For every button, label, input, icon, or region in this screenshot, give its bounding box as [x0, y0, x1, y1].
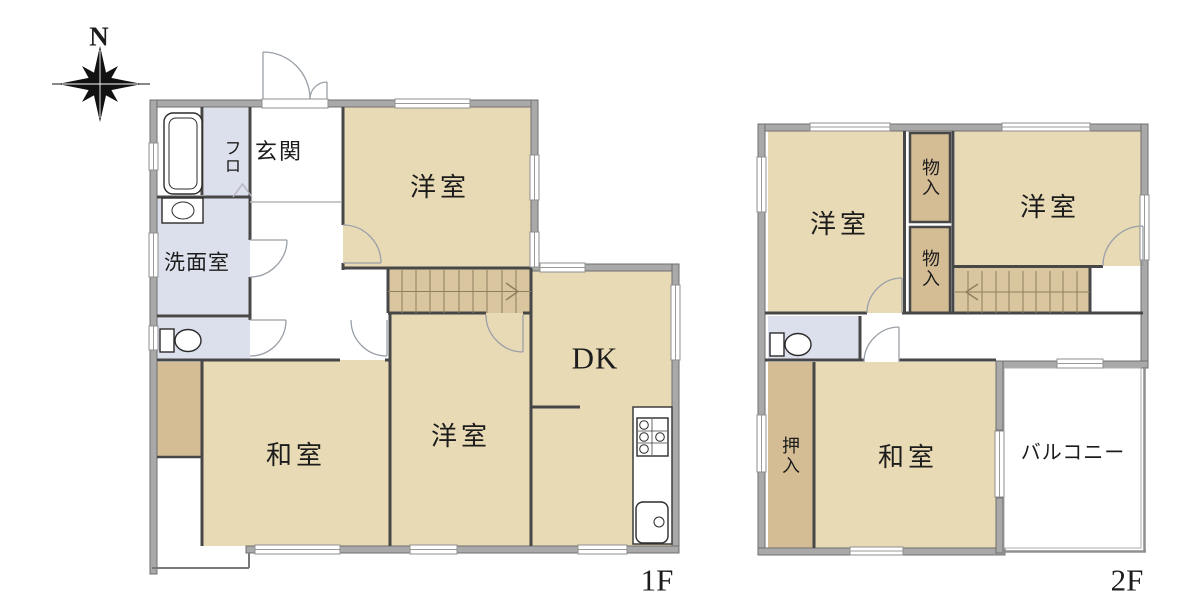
- floor1-plan: [149, 52, 680, 574]
- room-label-western-right-2f: 洋室: [1020, 195, 1080, 221]
- door-swing-arc: [864, 327, 899, 362]
- washbasin-icon: [162, 198, 203, 223]
- room-label-oshiire: 押入: [781, 436, 799, 476]
- porch-outline: [152, 553, 249, 568]
- room-label-dk: DK: [572, 343, 619, 374]
- entrance-opening: [262, 99, 328, 108]
- wall: [150, 100, 538, 107]
- toilet-icon: [160, 329, 201, 352]
- floor2-label: 2F: [1111, 565, 1144, 596]
- floor2-plan: [757, 123, 1149, 555]
- room-label-entrance: 玄関: [255, 141, 303, 163]
- room-label-western-left-2f: 洋室: [810, 212, 870, 238]
- floor1-label: 1F: [641, 565, 674, 596]
- room-label-western-upper-1f: 洋室: [410, 175, 470, 201]
- door-swing-arc: [250, 320, 286, 356]
- compass-rose-icon: [52, 46, 150, 122]
- room-label-storage-upper: 物入: [921, 158, 939, 198]
- room-label-japanese-1f: 和室: [266, 443, 326, 469]
- entrance-door-arc: [310, 82, 327, 99]
- room-label-western-lower-1f: 洋室: [431, 424, 491, 450]
- bathtub-icon: [164, 113, 202, 194]
- room-label-bath: フロ: [223, 139, 240, 175]
- door-swing-arc: [351, 320, 387, 356]
- compass-north-label: N: [89, 24, 109, 51]
- toilet-icon: [770, 333, 811, 356]
- room-label-storage-lower: 物入: [921, 249, 939, 289]
- room-label-japanese-2f: 和室: [878, 445, 938, 471]
- wall: [996, 498, 1003, 553]
- room-label-balcony: バルコニー: [1021, 443, 1126, 463]
- closet-1f: [157, 362, 202, 457]
- kitchen-sink-icon: [636, 502, 668, 543]
- floorplan-page: N フロ 玄関 洗面室 洋室 DK 洋室 和室 1F 洋室 物入 物入 洋室 押…: [0, 0, 1200, 614]
- stove-icon: [637, 418, 668, 456]
- door-swing-arc: [250, 240, 287, 277]
- floor-plan-canvas: [0, 0, 1200, 614]
- room-label-washroom: 洗面室: [164, 253, 230, 274]
- entrance-door-arc: [263, 52, 310, 99]
- wall: [996, 361, 1003, 430]
